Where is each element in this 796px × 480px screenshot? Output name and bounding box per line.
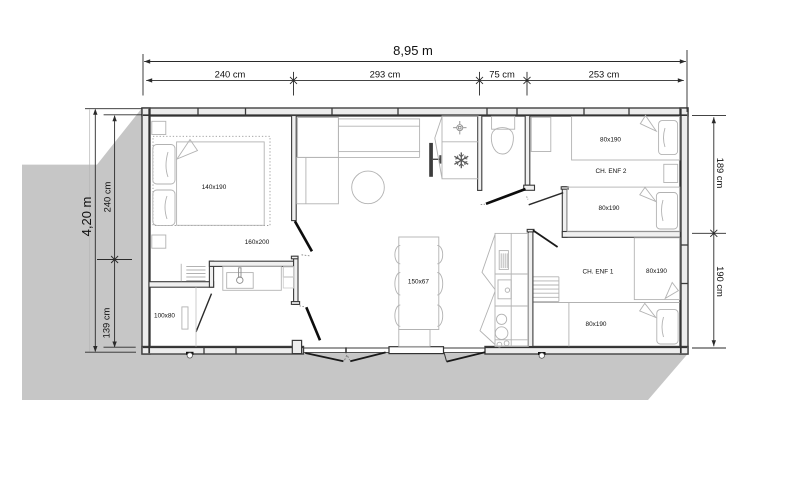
svg-text:253 cm: 253 cm xyxy=(589,69,620,80)
svg-text:240 cm: 240 cm xyxy=(215,69,246,80)
svg-text:80x190: 80x190 xyxy=(600,137,621,144)
svg-text:80x190: 80x190 xyxy=(586,321,607,328)
svg-text:80x190: 80x190 xyxy=(599,205,620,212)
svg-text:150x67: 150x67 xyxy=(408,279,429,286)
svg-text:8,95 m: 8,95 m xyxy=(393,43,433,58)
svg-text:4,20 m: 4,20 m xyxy=(79,197,94,237)
svg-text:75 cm: 75 cm xyxy=(489,69,515,80)
svg-text:240 cm: 240 cm xyxy=(102,181,113,212)
svg-text:CH. ENF 1: CH. ENF 1 xyxy=(583,269,614,276)
svg-text:CH. ENF 2: CH. ENF 2 xyxy=(596,168,627,175)
svg-text:139 cm: 139 cm xyxy=(101,307,112,338)
svg-text:140x190: 140x190 xyxy=(202,184,227,191)
svg-text:190 cm: 190 cm xyxy=(715,266,726,297)
svg-text:100x80: 100x80 xyxy=(154,313,175,320)
svg-text:189 cm: 189 cm xyxy=(715,158,726,189)
svg-text:160x200: 160x200 xyxy=(245,239,270,246)
svg-text:80x190: 80x190 xyxy=(646,268,667,275)
svg-text:293 cm: 293 cm xyxy=(370,69,401,80)
